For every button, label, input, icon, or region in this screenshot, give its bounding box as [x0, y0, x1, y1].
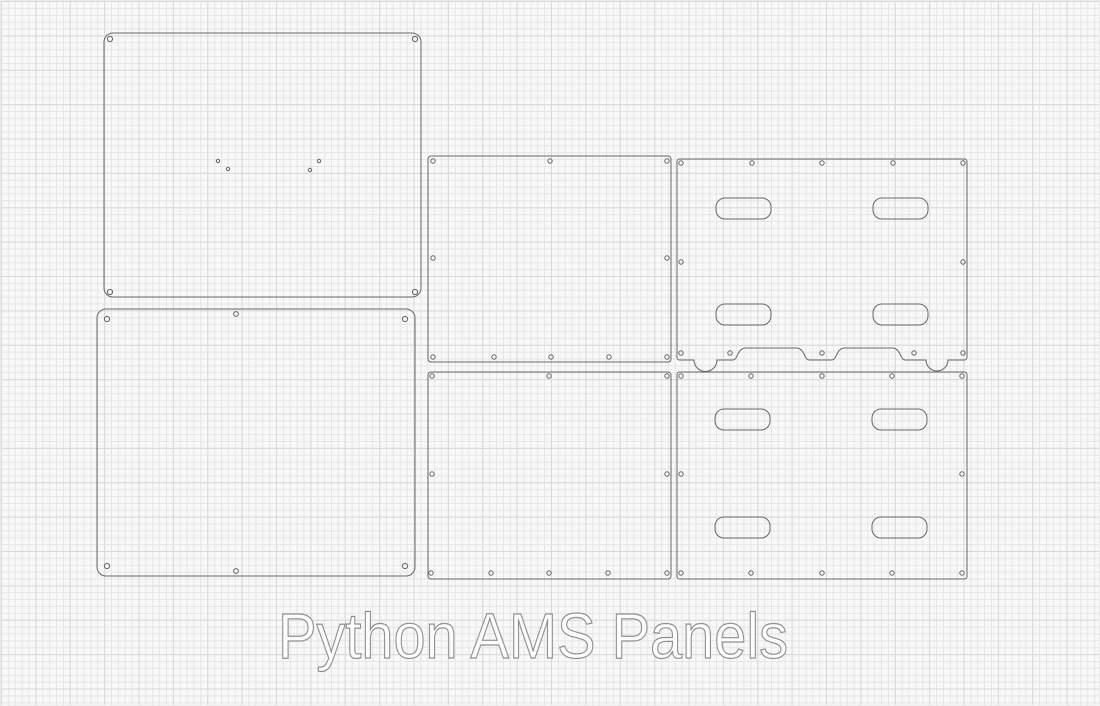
mounting-hole [402, 563, 407, 568]
mounting-hole [891, 161, 895, 165]
caption-text: Python AMS Panels [278, 600, 788, 672]
mounting-hole [549, 355, 553, 359]
mounting-hole [890, 374, 894, 378]
mounting-hole [820, 351, 824, 355]
mounting-hole [750, 161, 754, 165]
mounting-hole [961, 351, 965, 355]
mounting-hole [107, 36, 112, 41]
mounting-hole [431, 159, 435, 163]
mounting-hole [960, 472, 964, 476]
mounting-hole [431, 355, 435, 359]
slot-cutout [872, 409, 927, 430]
mounting-hole [679, 161, 683, 165]
panel-side-panel-top [428, 156, 671, 362]
mounting-hole [749, 374, 753, 378]
mounting-hole [107, 289, 112, 294]
mounting-hole [606, 571, 610, 575]
panel-top-cover [104, 33, 421, 297]
mounting-hole [960, 374, 964, 378]
panel-bottom-cover-outline [97, 309, 415, 576]
panel-top-cover-outline [104, 33, 421, 297]
panel-bottom-cover [97, 309, 415, 576]
slot-cutout [716, 198, 771, 219]
mounting-hole [665, 374, 669, 378]
mounting-hole [961, 260, 965, 264]
mounting-hole [961, 161, 965, 165]
mounting-hole [492, 355, 496, 359]
slot-cutout [716, 304, 771, 325]
mounting-hole [679, 351, 683, 355]
mounting-hole [430, 472, 434, 476]
mounting-hole [665, 256, 669, 260]
mounting-hole [820, 571, 824, 575]
mounting-hole [960, 571, 964, 575]
slot-cutout [873, 198, 928, 219]
mounting-hole [547, 571, 551, 575]
mounting-hole [665, 571, 669, 575]
mounting-hole [431, 256, 435, 260]
panel-layout-drawing: Python AMS Panels [1, 1, 1100, 706]
mounting-hole [749, 571, 753, 575]
mounting-hole [679, 260, 683, 264]
panel-slotted-panel-bottom-outline [677, 372, 967, 579]
mounting-hole [234, 569, 239, 574]
mounting-hole [890, 571, 894, 575]
mounting-hole [665, 355, 669, 359]
mounting-hole [820, 374, 824, 378]
mounting-hole [402, 316, 407, 321]
mounting-hole [489, 571, 493, 575]
mounting-hole [665, 472, 669, 476]
mounting-hole [412, 36, 417, 41]
panel-side-panel-bottom-outline [428, 372, 671, 579]
mounting-hole [226, 167, 229, 170]
mounting-hole [547, 374, 551, 378]
mounting-hole [679, 374, 683, 378]
mounting-hole [412, 289, 417, 294]
drawing-canvas: Python AMS Panels [0, 0, 1100, 706]
mounting-hole [308, 168, 311, 171]
mounting-hole [429, 571, 433, 575]
mounting-hole [679, 571, 683, 575]
mounting-hole [820, 161, 824, 165]
mounting-hole [430, 374, 434, 378]
mounting-hole [104, 316, 109, 321]
mounting-hole [912, 351, 916, 355]
mounting-hole [679, 472, 683, 476]
slot-cutout [872, 517, 927, 538]
panel-slotted-panel-bottom [677, 372, 967, 579]
mounting-hole [234, 312, 239, 317]
mounting-hole [607, 355, 611, 359]
mounting-hole [665, 159, 669, 163]
mounting-hole [548, 159, 552, 163]
panel-outlines-layer [97, 33, 967, 579]
slot-cutout [715, 409, 770, 430]
mounting-hole [104, 563, 109, 568]
mounting-hole [728, 351, 732, 355]
panel-slotted-panel-top [677, 159, 967, 372]
mounting-hole [216, 159, 219, 162]
slot-cutout [873, 304, 928, 325]
mounting-hole [317, 159, 320, 162]
panel-slotted-panel-top-outline [677, 159, 967, 372]
panel-side-panel-top-outline [428, 156, 671, 362]
panel-side-panel-bottom [428, 372, 671, 579]
slot-cutout [715, 517, 770, 538]
